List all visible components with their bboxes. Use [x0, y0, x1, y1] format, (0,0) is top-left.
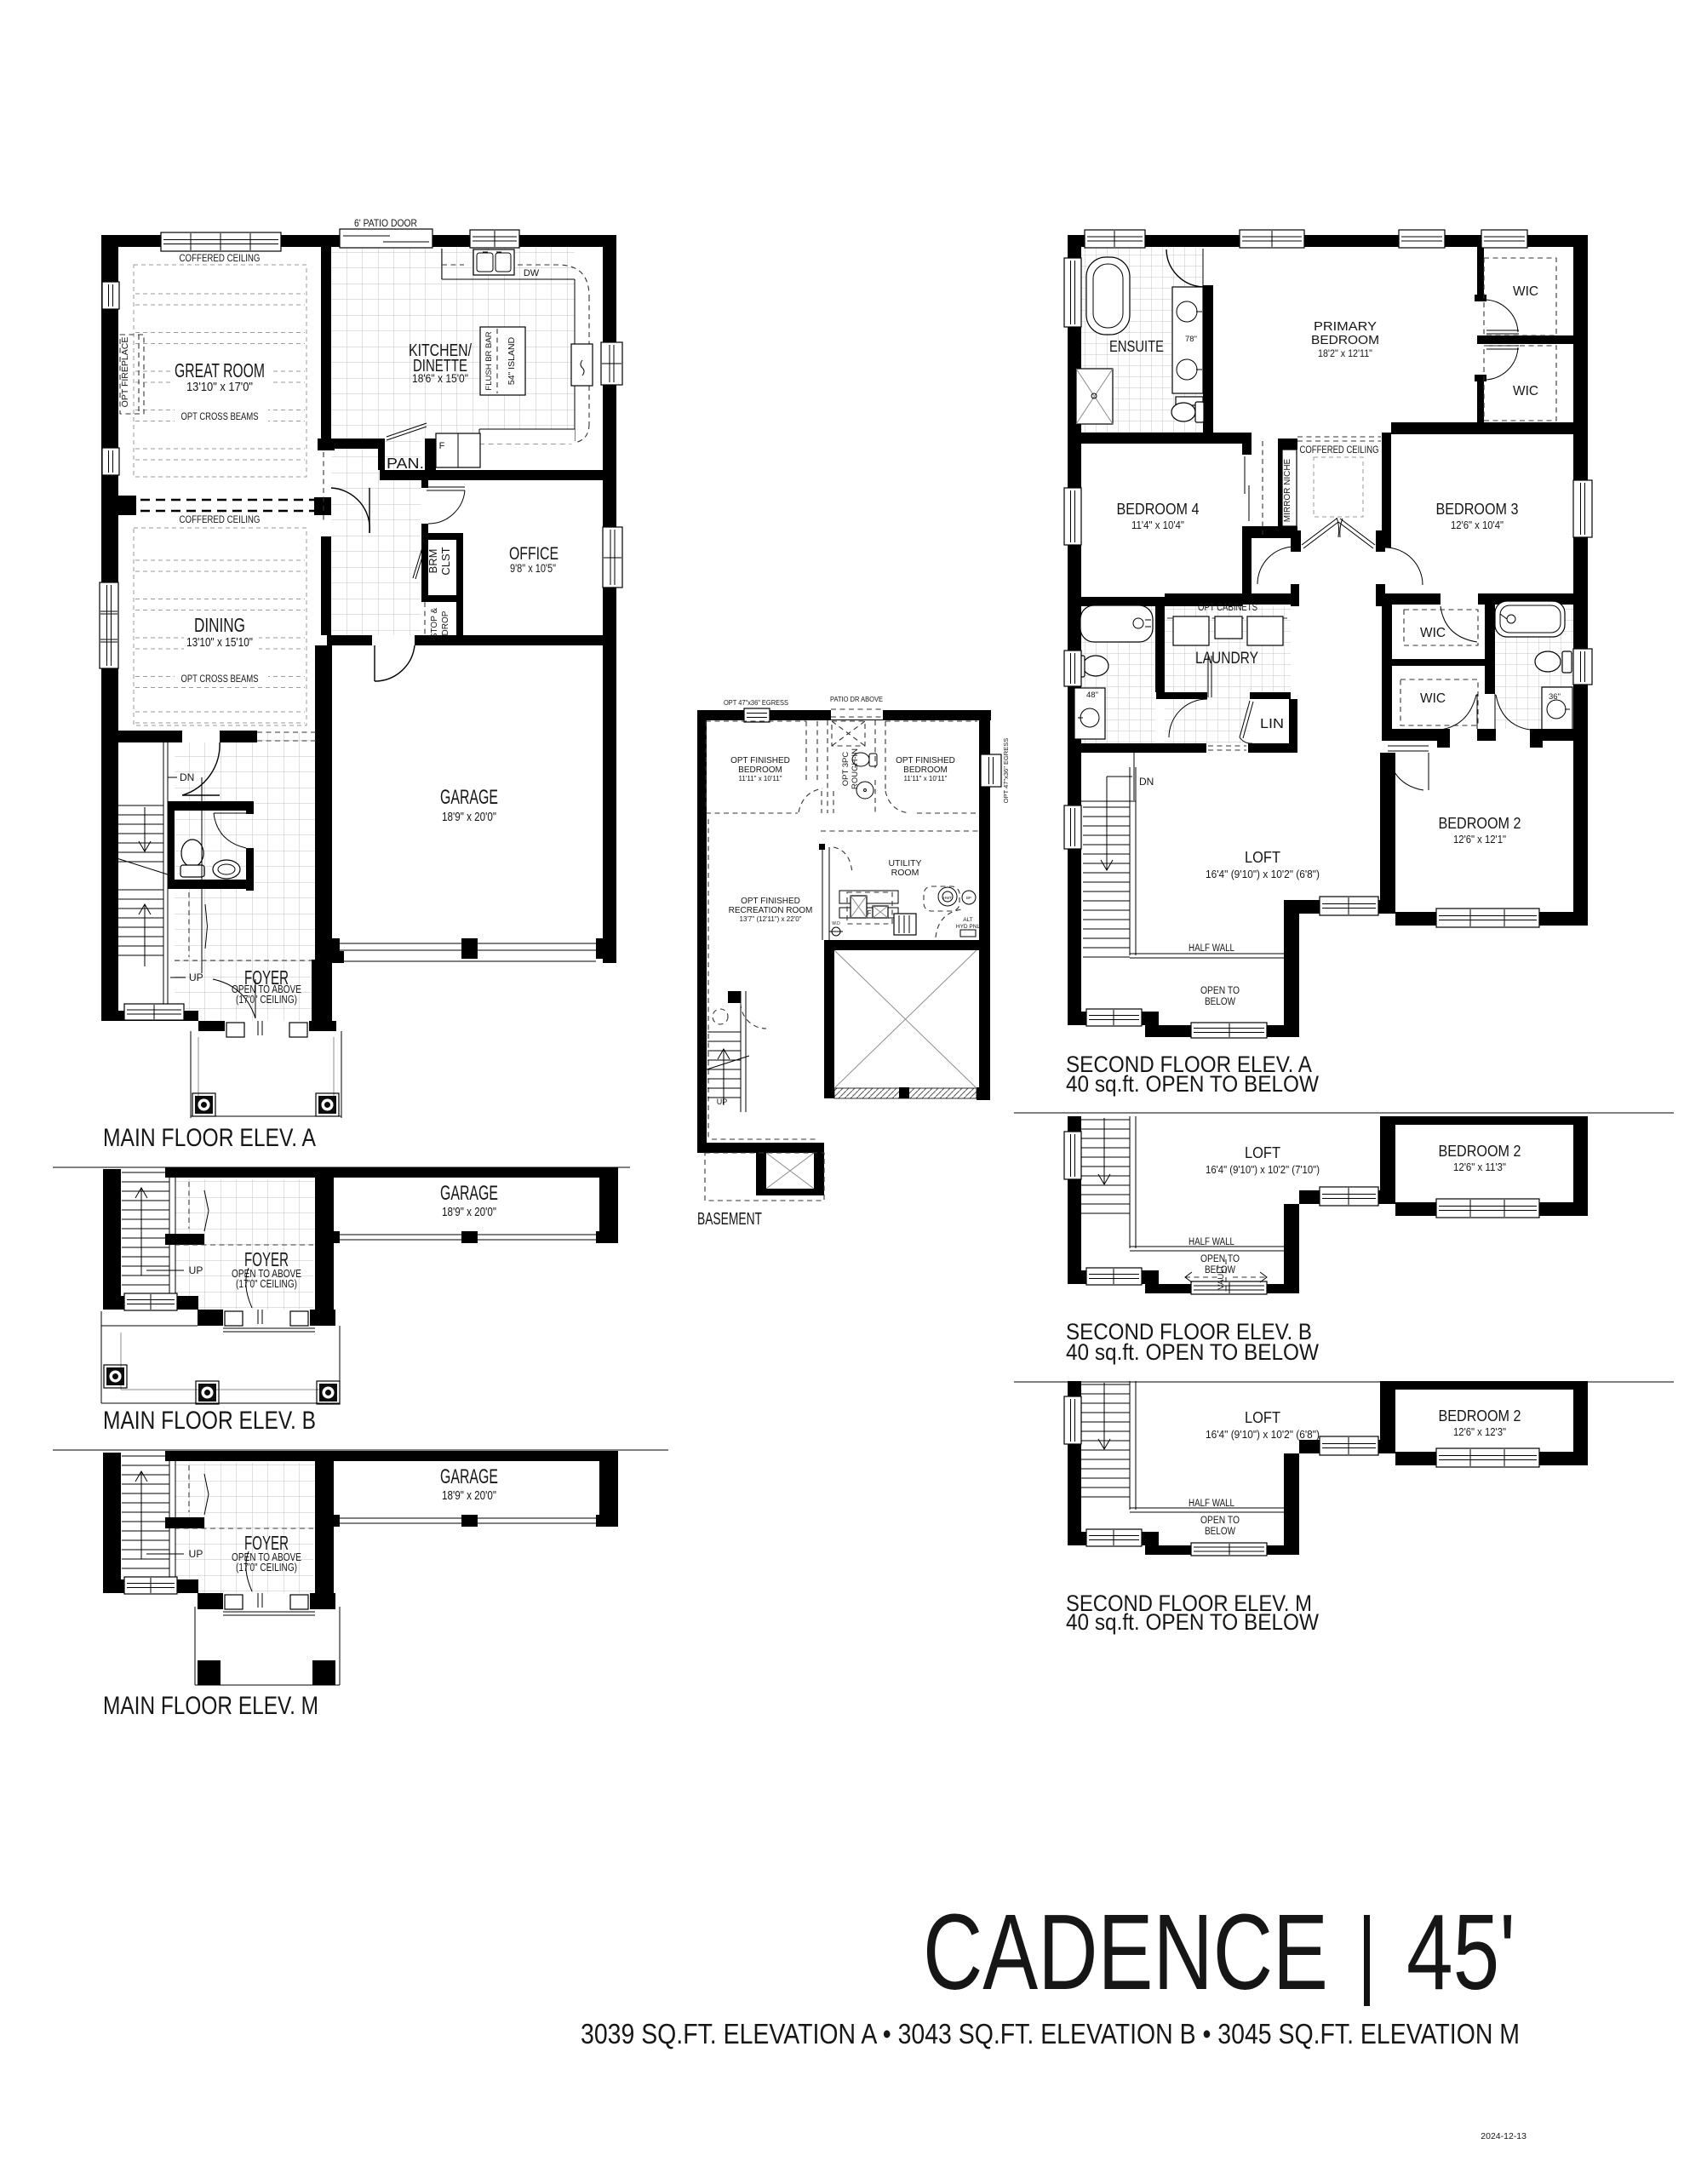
- svg-text:MAIN FLOOR ELEV. B: MAIN FLOOR ELEV. B: [103, 1407, 316, 1435]
- svg-text:GREAT ROOM: GREAT ROOM: [175, 359, 265, 381]
- svg-text:LOFT: LOFT: [1245, 1144, 1280, 1161]
- svg-text:WIC: WIC: [1420, 626, 1446, 640]
- svg-text:16'4" (9'10") x 10'2" (6'8"): 16'4" (9'10") x 10'2" (6'8"): [1206, 1428, 1320, 1441]
- svg-text:OPT 47"x36" EGRESS: OPT 47"x36" EGRESS: [1002, 738, 1010, 803]
- svg-text:DROP: DROP: [441, 610, 450, 635]
- svg-text:MAIN FLOOR ELEV. M: MAIN FLOOR ELEV. M: [103, 1692, 318, 1720]
- svg-text:STOP &: STOP &: [430, 608, 439, 639]
- svg-text:OPEN TO: OPEN TO: [1200, 986, 1240, 996]
- svg-text:LOFT: LOFT: [1245, 849, 1280, 866]
- svg-text:DN: DN: [1139, 776, 1154, 788]
- svg-text:VAULT: VAULT: [1217, 1264, 1226, 1289]
- svg-text:40 sq.ft. OPEN TO BELOW: 40 sq.ft. OPEN TO BELOW: [1066, 1609, 1319, 1635]
- svg-text:PAN.: PAN.: [387, 455, 424, 472]
- svg-text:MIRROR NICHE: MIRROR NICHE: [1283, 458, 1292, 522]
- svg-text:UP: UP: [189, 1548, 203, 1560]
- svg-text:OPT FINISHED: OPT FINISHED: [741, 897, 800, 906]
- svg-text:11'4" x 10'4": 11'4" x 10'4": [1131, 519, 1184, 531]
- svg-text:48": 48": [1086, 691, 1098, 700]
- svg-text:OPT 3PC: OPT 3PC: [841, 752, 851, 787]
- svg-text:BRM: BRM: [427, 549, 439, 574]
- svg-text:45': 45': [1406, 1892, 1515, 2012]
- svg-text:PATIO DR ABOVE: PATIO DR ABOVE: [830, 695, 883, 703]
- svg-text:MAIN FLOOR ELEV. A: MAIN FLOOR ELEV. A: [103, 1124, 316, 1152]
- svg-text:(17'0" CEILING): (17'0" CEILING): [236, 1278, 297, 1290]
- svg-text:(17'0" CEILING): (17'0" CEILING): [236, 1562, 297, 1574]
- svg-text:12'6" x 12'1": 12'6" x 12'1": [1453, 833, 1506, 846]
- svg-text:11'11" x 10'11": 11'11" x 10'11": [904, 775, 948, 782]
- svg-text:CADENCE: CADENCE: [923, 1892, 1328, 2012]
- svg-text:LAUNDRY: LAUNDRY: [1195, 650, 1258, 668]
- svg-text:40 sq.ft. OPEN TO BELOW: 40 sq.ft. OPEN TO BELOW: [1066, 1339, 1319, 1365]
- svg-text:18'6" x 15'0": 18'6" x 15'0": [412, 371, 468, 385]
- svg-text:16'4" (9'10") x 10'2" (7'10"): 16'4" (9'10") x 10'2" (7'10"): [1206, 1163, 1320, 1176]
- svg-text:LOFT: LOFT: [1245, 1409, 1280, 1426]
- svg-text:BEDROOM 4: BEDROOM 4: [1117, 501, 1200, 518]
- svg-text:2024-12-13: 2024-12-13: [1481, 2131, 1526, 2141]
- svg-text:16'4" (9'10") x 10'2" (6'8"): 16'4" (9'10") x 10'2" (6'8"): [1206, 868, 1320, 880]
- svg-text:COFFERED CEILING: COFFERED CEILING: [180, 252, 261, 264]
- svg-text:BEDROOM: BEDROOM: [738, 765, 782, 775]
- svg-text:DINING: DINING: [194, 614, 245, 636]
- svg-text:BEDROOM 3: BEDROOM 3: [1436, 501, 1519, 518]
- svg-text:13'10" x 15'10": 13'10" x 15'10": [186, 635, 253, 650]
- svg-text:OPEN TO: OPEN TO: [1200, 1516, 1240, 1526]
- svg-text:BELOW: BELOW: [1205, 997, 1235, 1007]
- svg-text:(17'0" CEILING): (17'0" CEILING): [236, 994, 297, 1006]
- svg-text:BEDROOM 2: BEDROOM 2: [1439, 1143, 1521, 1160]
- svg-text:DN: DN: [180, 771, 194, 783]
- svg-text:OPT FIREPLACE: OPT FIREPLACE: [120, 337, 130, 408]
- svg-text:HWT: HWT: [943, 896, 952, 900]
- svg-text:RECREATION ROOM: RECREATION ROOM: [729, 906, 813, 915]
- svg-text:9'8" x 10'5": 9'8" x 10'5": [510, 561, 556, 575]
- svg-text:OPT 47"x36" EGRESS: OPT 47"x36" EGRESS: [724, 698, 788, 707]
- svg-text:COFFERED CEILING: COFFERED CEILING: [180, 513, 261, 525]
- svg-text:ALT: ALT: [963, 917, 972, 923]
- svg-text:DW: DW: [524, 268, 540, 278]
- svg-text:12'6" x 12'3": 12'6" x 12'3": [1453, 1425, 1506, 1438]
- svg-text:OPT CROSS BEAMS: OPT CROSS BEAMS: [181, 673, 259, 685]
- svg-text:18'9" x 20'0": 18'9" x 20'0": [442, 810, 496, 824]
- svg-text:12'6" x 11'3": 12'6" x 11'3": [1453, 1161, 1506, 1173]
- svg-text:ROOM: ROOM: [891, 868, 919, 878]
- svg-text:LIN: LIN: [1260, 717, 1284, 731]
- svg-text:OPT CABINETS: OPT CABINETS: [1198, 603, 1257, 613]
- svg-text:GARAGE: GARAGE: [440, 1465, 498, 1488]
- svg-text:UP: UP: [717, 1098, 728, 1106]
- svg-text:COFFERED CEILING: COFFERED CEILING: [1300, 444, 1379, 456]
- svg-text:36": 36": [1549, 692, 1561, 702]
- svg-text:18'9" x 20'0": 18'9" x 20'0": [442, 1488, 496, 1503]
- svg-text:HYD PNL: HYD PNL: [956, 924, 981, 930]
- svg-text:BEDROOM 2: BEDROOM 2: [1439, 1407, 1521, 1424]
- svg-text:UP: UP: [189, 972, 203, 983]
- svg-text:F: F: [439, 441, 445, 451]
- svg-text:BEDROOM 2: BEDROOM 2: [1439, 815, 1521, 832]
- svg-text:CLST: CLST: [439, 547, 452, 575]
- svg-text:OPT CROSS BEAMS: OPT CROSS BEAMS: [181, 410, 259, 422]
- svg-text:WIC: WIC: [1513, 284, 1538, 299]
- svg-text:BEDROOM: BEDROOM: [903, 765, 948, 775]
- svg-text:PRIMARY: PRIMARY: [1314, 319, 1377, 334]
- svg-text:OPT FINISHED: OPT FINISHED: [896, 756, 955, 765]
- svg-text:WIC: WIC: [1420, 691, 1446, 706]
- svg-text:BEDROOM: BEDROOM: [1311, 333, 1379, 347]
- svg-text:54" ISLAND: 54" ISLAND: [507, 336, 517, 385]
- svg-text:12'6" x 10'4": 12'6" x 10'4": [1451, 519, 1504, 531]
- svg-text:3039 SQ.FT. ELEVATION A • 3043: 3039 SQ.FT. ELEVATION A • 3043 SQ.FT. EL…: [581, 2018, 1520, 2049]
- svg-text:11'11" x 10'11": 11'11" x 10'11": [739, 775, 782, 782]
- svg-text:FLUSH BR BAR: FLUSH BR BAR: [484, 331, 494, 390]
- svg-text:HALF WALL: HALF WALL: [1189, 943, 1235, 954]
- svg-text:BASEMENT: BASEMENT: [697, 1210, 762, 1229]
- svg-text:UP: UP: [189, 1264, 203, 1276]
- svg-text:W.D: W.D: [832, 921, 840, 926]
- svg-text:OPT FINISHED: OPT FINISHED: [730, 756, 790, 765]
- svg-text:OPEN TO: OPEN TO: [1200, 1254, 1240, 1264]
- svg-text:GARAGE: GARAGE: [440, 786, 498, 809]
- svg-text:13'7" (12'11") x 22'0": 13'7" (12'11") x 22'0": [740, 915, 802, 923]
- svg-text:40 sq.ft. OPEN TO BELOW: 40 sq.ft. OPEN TO BELOW: [1066, 1071, 1319, 1097]
- svg-text:13'10" x 17'0": 13'10" x 17'0": [186, 380, 253, 394]
- svg-text:ROUGH-IN: ROUGH-IN: [851, 748, 860, 789]
- svg-text:6' PATIO DOOR: 6' PATIO DOOR: [354, 217, 417, 229]
- svg-text:HALF WALL: HALF WALL: [1189, 1499, 1235, 1509]
- svg-text:F: F: [868, 909, 872, 917]
- svg-text:HALF WALL: HALF WALL: [1189, 1237, 1235, 1247]
- svg-text:GARAGE: GARAGE: [440, 1182, 498, 1205]
- svg-text:WIC: WIC: [1513, 384, 1538, 398]
- svg-text:ENSUITE: ENSUITE: [1109, 338, 1164, 355]
- svg-text:BP: BP: [966, 896, 971, 900]
- svg-text:78": 78": [1185, 335, 1197, 344]
- svg-text:18'9" x 20'0": 18'9" x 20'0": [442, 1205, 496, 1219]
- svg-text:18'2" x 12'11": 18'2" x 12'11": [1318, 347, 1372, 359]
- svg-text:BELOW: BELOW: [1205, 1527, 1235, 1537]
